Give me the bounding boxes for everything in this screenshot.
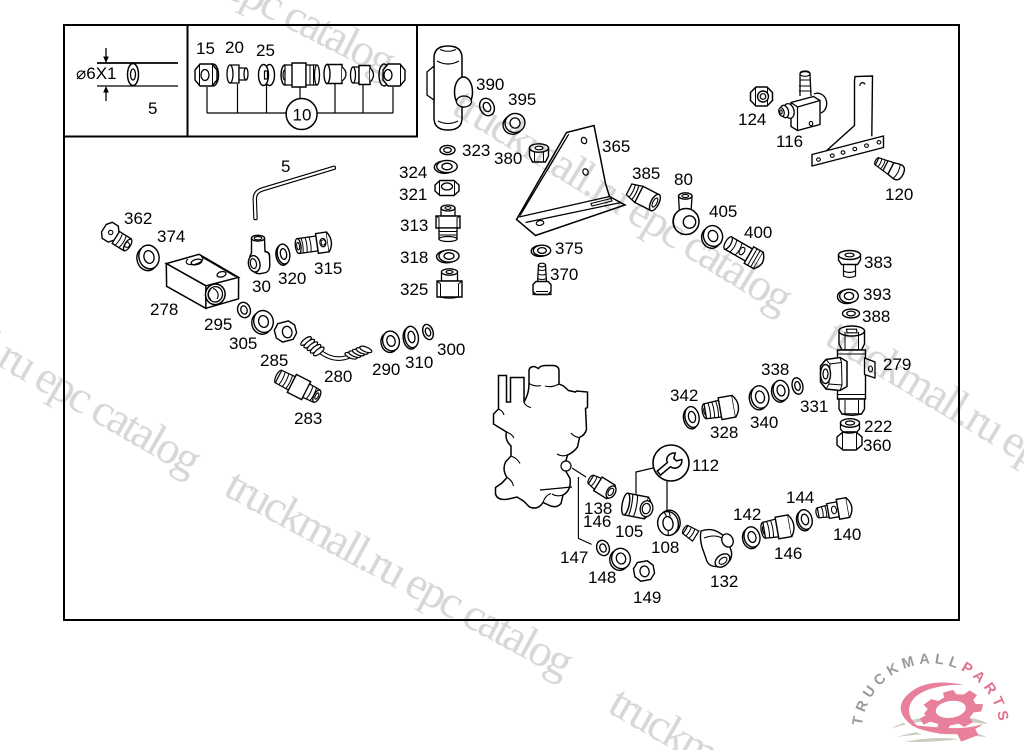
svg-text:108: 108: [651, 538, 679, 557]
svg-text:280: 280: [324, 367, 352, 386]
svg-text:112: 112: [692, 456, 719, 475]
svg-text:300: 300: [437, 340, 465, 359]
svg-text:132: 132: [710, 572, 738, 591]
svg-text:149: 149: [633, 588, 661, 607]
svg-text:25: 25: [256, 41, 275, 60]
svg-text:324: 324: [399, 163, 427, 182]
svg-text:147: 147: [560, 548, 588, 567]
svg-text:360: 360: [863, 436, 891, 455]
svg-text:342: 342: [670, 386, 698, 405]
svg-text:20: 20: [225, 38, 244, 57]
svg-text:142: 142: [733, 505, 761, 524]
svg-text:10: 10: [293, 106, 312, 125]
svg-text:405: 405: [709, 202, 737, 221]
svg-text:374: 374: [157, 227, 185, 246]
svg-text:144: 144: [786, 488, 814, 507]
svg-text:15: 15: [196, 39, 215, 58]
svg-text:313: 313: [400, 216, 428, 235]
svg-text:393: 393: [863, 285, 891, 304]
svg-text:5: 5: [148, 99, 157, 118]
svg-text:285: 285: [260, 351, 288, 370]
svg-text:362: 362: [124, 209, 152, 228]
svg-text:30: 30: [252, 277, 271, 296]
svg-text:310: 310: [405, 353, 433, 372]
svg-text:222: 222: [864, 417, 892, 436]
svg-text:105: 105: [615, 522, 643, 541]
svg-text:383: 383: [864, 253, 892, 272]
svg-text:283: 283: [294, 409, 322, 428]
svg-text:320: 320: [278, 269, 306, 288]
svg-text:400: 400: [744, 223, 772, 242]
svg-text:146: 146: [774, 544, 802, 563]
svg-text:318: 318: [400, 248, 428, 267]
svg-text:5: 5: [281, 157, 290, 176]
svg-text:116: 116: [776, 132, 803, 151]
svg-text:⌀6X1: ⌀6X1: [76, 64, 116, 83]
svg-text:148: 148: [588, 568, 616, 587]
svg-text:365: 365: [602, 137, 630, 156]
svg-text:80: 80: [674, 170, 693, 189]
svg-text:278: 278: [150, 300, 178, 319]
svg-text:338: 338: [761, 360, 789, 379]
svg-text:370: 370: [550, 265, 578, 284]
svg-text:124: 124: [738, 110, 766, 129]
svg-text:325: 325: [400, 280, 428, 299]
svg-text:146: 146: [583, 512, 611, 531]
svg-text:375: 375: [555, 239, 583, 258]
svg-text:295: 295: [204, 315, 232, 334]
svg-text:328: 328: [710, 423, 738, 442]
svg-text:321: 321: [399, 185, 427, 204]
svg-text:305: 305: [229, 334, 257, 353]
svg-text:140: 140: [833, 525, 861, 544]
svg-text:290: 290: [372, 360, 400, 379]
svg-text:331: 331: [800, 397, 828, 416]
svg-text:120: 120: [885, 185, 913, 204]
svg-text:340: 340: [750, 413, 778, 432]
svg-text:315: 315: [314, 259, 342, 278]
